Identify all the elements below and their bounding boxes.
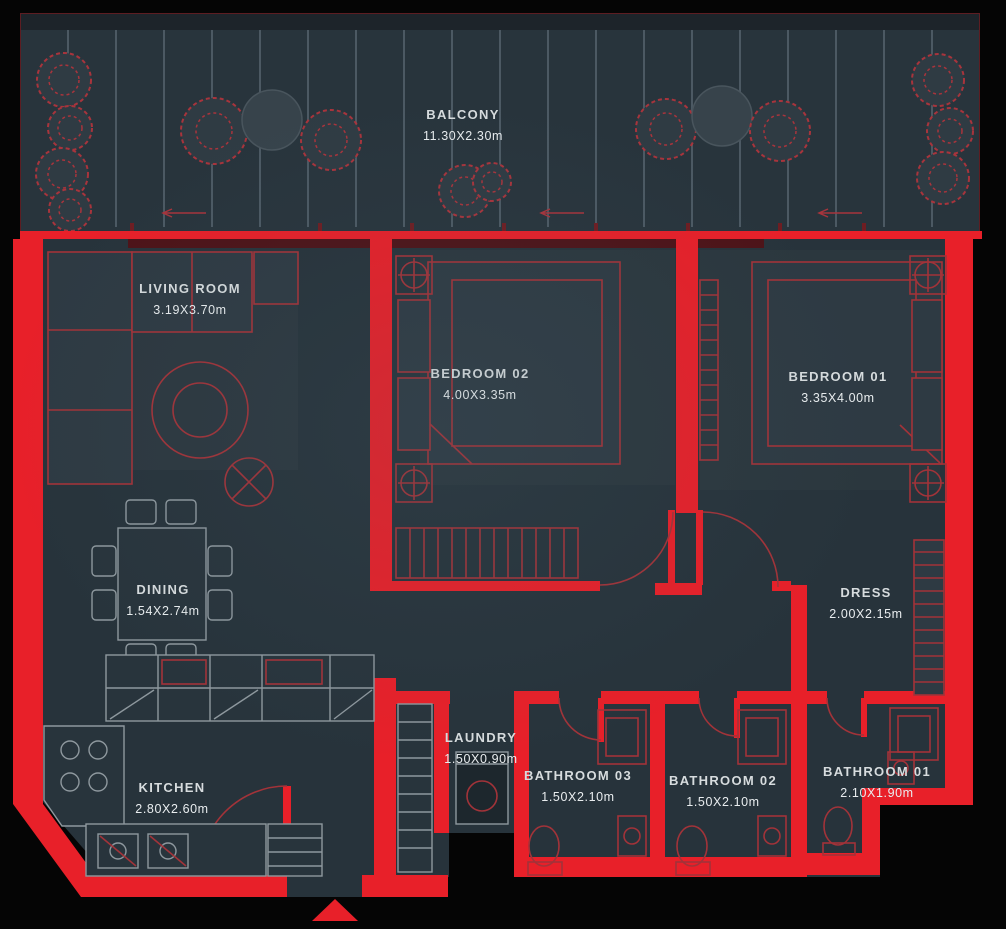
hall-shelves	[398, 704, 432, 872]
balcony-table	[242, 90, 302, 150]
room-name: BATHROOM 02	[669, 773, 777, 788]
room-dimensions: 2.00X2.15m	[829, 607, 902, 621]
room-name: LAUNDRY	[444, 730, 517, 745]
balcony-table-2	[692, 86, 752, 146]
room-name: BATHROOM 03	[524, 768, 632, 783]
stove	[44, 726, 124, 826]
room-label-balcony: BALCONY 11.30X2.30m	[423, 107, 503, 143]
room-dimensions: 1.50X2.10m	[524, 790, 632, 804]
room-name: DINING	[126, 582, 199, 597]
room-dimensions: 2.10X1.90m	[823, 786, 931, 800]
room-label-bathroom-03: BATHROOM 03 1.50X2.10m	[524, 768, 632, 804]
room-label-bathroom-02: BATHROOM 02 1.50X2.10m	[669, 773, 777, 809]
room-label-kitchen: KITCHEN 2.80X2.60m	[135, 780, 208, 816]
dress-shelves	[914, 540, 944, 695]
room-name: BATHROOM 01	[823, 764, 931, 779]
balcony-direction-arrows	[163, 209, 862, 217]
room-dimensions: 3.19X3.70m	[139, 303, 241, 317]
room-dimensions: 1.54X2.74m	[126, 604, 199, 618]
entrance-marker	[312, 899, 358, 921]
room-label-bedroom-02: BEDROOM 02 4.00X3.35m	[431, 366, 530, 402]
pantry-cabinet	[268, 824, 322, 876]
room-dimensions: 11.30X2.30m	[423, 129, 503, 143]
balcony-trees	[36, 53, 973, 231]
room-name: LIVING ROOM	[139, 281, 241, 296]
room-name: BEDROOM 02	[431, 366, 530, 381]
kitchen-sink-counter	[86, 824, 322, 876]
room-dimensions: 3.35X4.00m	[789, 391, 888, 405]
room-label-living-room: LIVING ROOM 3.19X3.70m	[139, 281, 241, 317]
room-dimensions: 1.50X0.90m	[444, 752, 517, 766]
room-label-dress: DRESS 2.00X2.15m	[829, 585, 902, 621]
room-dimensions: 1.50X2.10m	[669, 795, 777, 809]
room-dimensions: 2.80X2.60m	[135, 802, 208, 816]
floor-plan: BALCONY 11.30X2.30m LIVING ROOM 3.19X3.7…	[0, 0, 1006, 929]
kitchen-cabinets	[106, 655, 374, 721]
room-name: DRESS	[829, 585, 902, 600]
room-name: BEDROOM 01	[789, 369, 888, 384]
room-label-dining: DINING 1.54X2.74m	[126, 582, 199, 618]
room-label-bathroom-01: BATHROOM 01 2.10X1.90m	[823, 764, 931, 800]
room-name: BALCONY	[423, 107, 503, 122]
room-dimensions: 4.00X3.35m	[431, 388, 530, 402]
room-name: KITCHEN	[135, 780, 208, 795]
room-label-bedroom-01: BEDROOM 01 3.35X4.00m	[789, 369, 888, 405]
room-label-laundry: LAUNDRY 1.50X0.90m	[444, 730, 517, 766]
